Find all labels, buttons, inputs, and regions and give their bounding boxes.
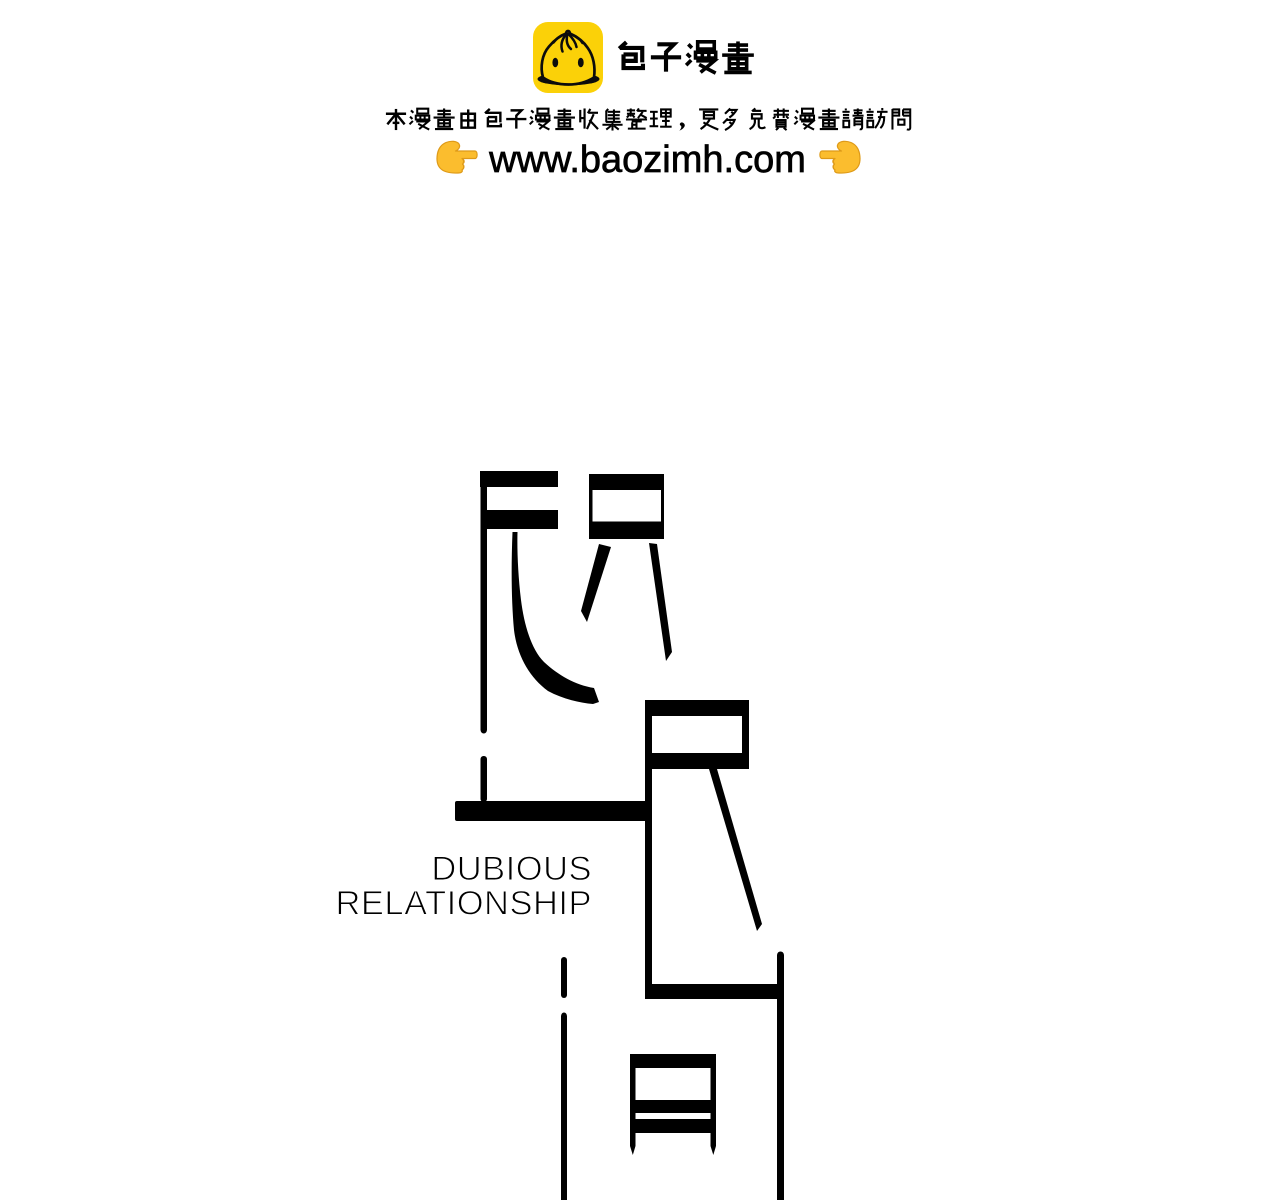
svg-text:www.baozimh.com: www.baozimh.com [488, 139, 806, 181]
svg-text:DUBIOUS: DUBIOUS [431, 850, 592, 888]
svg-text:RELATIONSHIP: RELATIONSHIP [336, 885, 593, 923]
